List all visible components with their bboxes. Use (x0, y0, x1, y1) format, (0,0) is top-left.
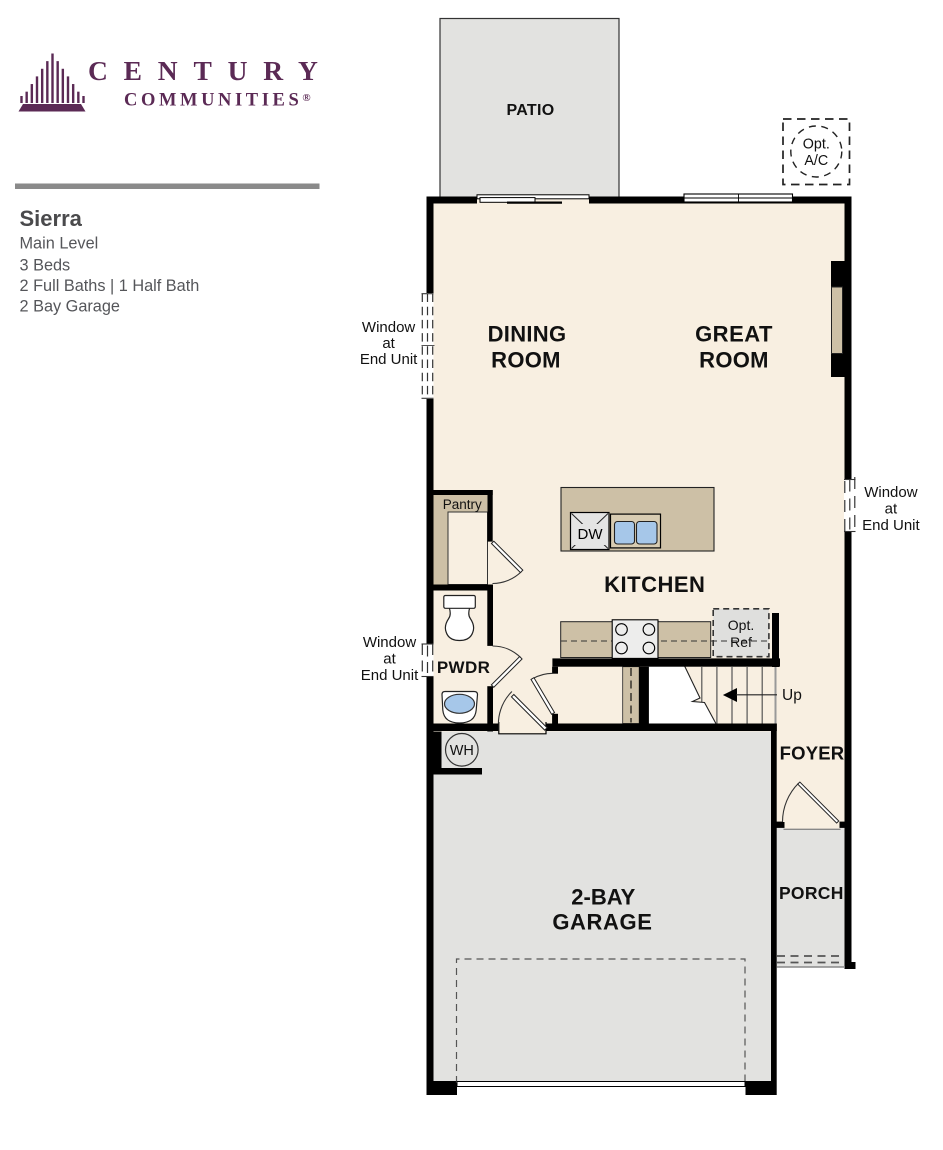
svg-text:Opt.: Opt. (728, 617, 754, 633)
svg-text:at: at (382, 335, 395, 352)
svg-text:2 Full Baths | 1 Half Bath: 2 Full Baths | 1 Half Bath (20, 277, 200, 295)
svg-text:GARAGE: GARAGE (552, 910, 652, 935)
svg-text:ROOM: ROOM (491, 348, 561, 373)
svg-text:DW: DW (578, 526, 604, 543)
svg-text:at: at (885, 501, 898, 518)
svg-text:GREAT: GREAT (695, 322, 773, 347)
svg-text:End Unit: End Unit (361, 667, 419, 684)
svg-text:ROOM: ROOM (699, 348, 769, 373)
svg-text:2-BAY: 2-BAY (571, 885, 635, 910)
svg-text:Pantry: Pantry (443, 497, 482, 512)
svg-text:DINING: DINING (488, 322, 567, 347)
svg-text:Main Level: Main Level (20, 235, 99, 253)
svg-text:Ref: Ref (730, 634, 752, 650)
svg-text:PWDR: PWDR (437, 658, 491, 677)
svg-text:WH: WH (450, 743, 474, 759)
svg-text:CENTURY: CENTURY (88, 55, 334, 86)
svg-text:Window: Window (864, 484, 918, 501)
svg-text:End Unit: End Unit (862, 517, 920, 534)
svg-text:A/C: A/C (804, 153, 828, 169)
svg-text:Up: Up (782, 687, 802, 704)
svg-text:Window: Window (363, 634, 417, 651)
svg-text:3 Beds: 3 Beds (20, 257, 71, 275)
svg-text:PATIO: PATIO (506, 102, 554, 119)
svg-text:at: at (383, 650, 396, 667)
svg-text:2 Bay Garage: 2 Bay Garage (20, 298, 120, 316)
svg-text:Sierra: Sierra (20, 206, 83, 231)
svg-text:Opt.: Opt. (803, 137, 830, 153)
svg-text:Window: Window (362, 319, 416, 336)
svg-text:FOYER: FOYER (780, 743, 845, 764)
svg-text:KITCHEN: KITCHEN (604, 572, 705, 597)
svg-text:COMMUNITIES®: COMMUNITIES® (124, 91, 314, 111)
svg-text:PORCH: PORCH (779, 883, 844, 903)
svg-text:End Unit: End Unit (360, 351, 418, 368)
